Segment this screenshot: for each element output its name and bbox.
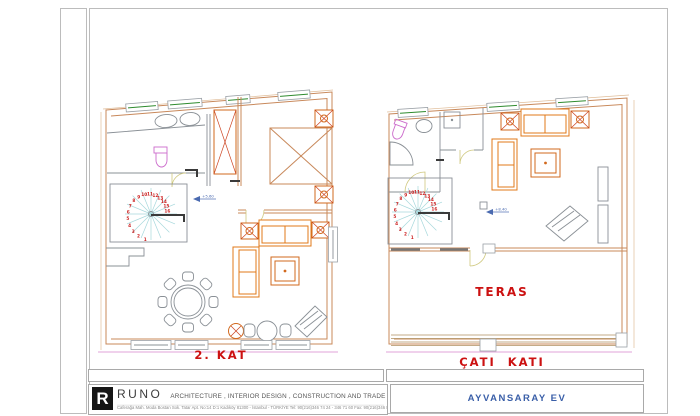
- shower-icon: [390, 142, 413, 165]
- teras-area: TERAS: [391, 285, 627, 351]
- level-marker: +5.60: [193, 194, 216, 203]
- stair-tread-number: 6: [127, 210, 130, 216]
- nightstand: [315, 110, 333, 127]
- stair-tread-number: 7: [396, 201, 399, 207]
- plan-label-cati-kati: ÇATI KATI: [459, 355, 545, 369]
- stair-tread-number: 1: [411, 235, 414, 241]
- project-name: AYVANSARAY EV: [390, 384, 644, 413]
- title-block: R RUNO ARCHITECTURE , INTERIOR DESIGN , …: [88, 369, 644, 415]
- column: [480, 202, 487, 209]
- stair-tread-number: 16: [164, 208, 170, 214]
- stair-tread-number: 4: [128, 223, 131, 229]
- stair-tread-number: 4: [395, 221, 398, 227]
- teras-wall: [389, 244, 627, 266]
- plan-cati-kati: 12345678910111213141516 +8.40 TERA: [386, 95, 634, 369]
- stair-tread-number: 7: [129, 203, 132, 209]
- side-table: [501, 113, 519, 130]
- teras-label: TERAS: [475, 285, 529, 299]
- stair-tread-number: 2: [404, 232, 407, 238]
- level-value: +5.60: [202, 194, 214, 199]
- plan-label-2kat: 2. KAT: [194, 348, 247, 362]
- exterior-walls: [386, 95, 634, 352]
- stair-tread-number: 3: [132, 229, 135, 235]
- sofa-set: [233, 220, 329, 297]
- stair-tread-number: 8: [132, 198, 135, 204]
- sideboard: [598, 167, 608, 243]
- spiral-staircase: 12345678910111213141516: [110, 184, 187, 243]
- company-address: Caferağa Mah. Moda Bostan Sok. Tatar Apt…: [117, 405, 384, 410]
- stair-tread-number: 5: [126, 216, 129, 222]
- stair-tread-number: 3: [399, 227, 402, 233]
- sofa: [259, 220, 311, 246]
- stair-tread-number: 9: [137, 194, 140, 200]
- title-block-empty-cell-left: [88, 369, 384, 382]
- toilet-icon: [154, 147, 167, 167]
- chaise: [295, 306, 327, 337]
- spiral-staircase: 12345678910111213141516: [388, 178, 452, 244]
- stair-tread-number: 5: [393, 214, 396, 220]
- sofa: [233, 247, 259, 297]
- bathroom: [107, 112, 210, 187]
- company-tagline: ARCHITECTURE , INTERIOR DESIGN , CONSTRU…: [170, 393, 388, 400]
- level-marker: +8.40: [486, 207, 509, 216]
- sofa-set: [492, 109, 589, 190]
- floor-plan-drawing: 12345678910111213141516 +5.60: [0, 0, 700, 416]
- dining-table: [158, 272, 218, 332]
- stair-tread-number: 16: [431, 206, 437, 212]
- level-value: +8.40: [495, 207, 507, 212]
- stair-tread-number: 6: [394, 208, 397, 214]
- coffee-table: [531, 149, 560, 177]
- sofa: [521, 109, 569, 136]
- stair-tread-number: 8: [399, 196, 402, 202]
- coffee-table: [271, 257, 299, 285]
- company-info-cell: R RUNO ARCHITECTURE , INTERIOR DESIGN , …: [88, 384, 388, 415]
- bedroom: [238, 110, 333, 228]
- plan-2kat: 12345678910111213141516 +5.60: [98, 90, 338, 362]
- nightstand: [315, 186, 333, 203]
- stair-tread-number: 2: [137, 234, 140, 240]
- company-logo-letter: R: [96, 389, 108, 409]
- stair-tread-number: 9: [404, 192, 407, 198]
- stair-tread-number: 1: [144, 237, 147, 243]
- side-table: [571, 111, 589, 128]
- basin-icon: [416, 120, 432, 133]
- chaise: [546, 206, 588, 241]
- sofa: [492, 139, 517, 190]
- side-table: [312, 222, 329, 238]
- corner-seating: [229, 306, 328, 341]
- company-logo: R: [92, 387, 113, 410]
- title-block-empty-cell-right: [386, 369, 644, 382]
- bathroom: [389, 112, 440, 192]
- toilet-icon: [390, 119, 408, 140]
- company-name: RUNO: [117, 387, 162, 401]
- wardrobe: [214, 110, 236, 174]
- side-table: [241, 223, 258, 239]
